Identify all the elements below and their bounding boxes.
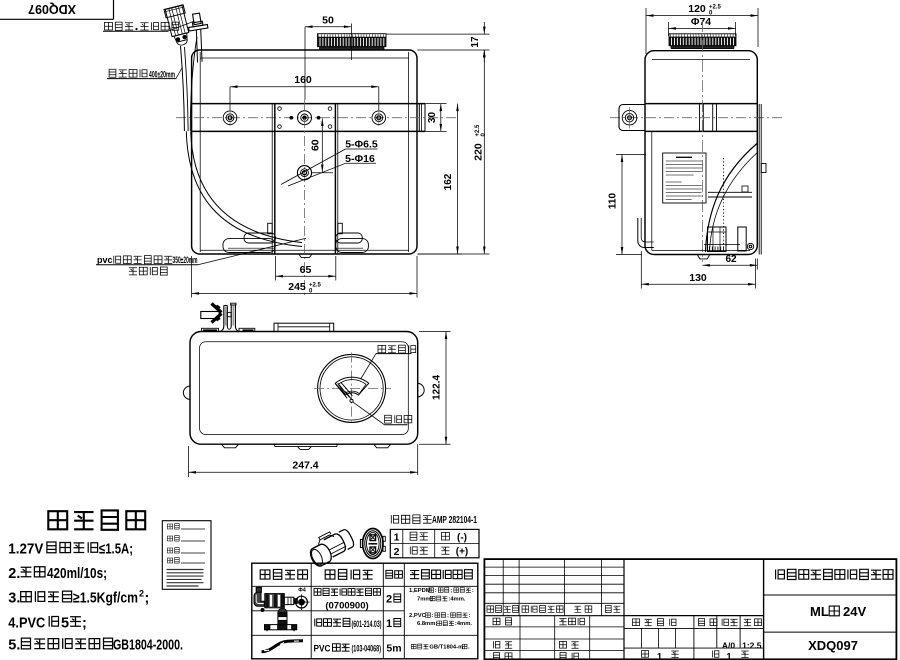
svg-text:122.4: 122.4: [432, 375, 443, 400]
svg-text:120: 120: [688, 3, 706, 15]
svg-text:1,EPDM: 1,EPDM: [409, 588, 431, 594]
svg-text::: :: [472, 588, 474, 594]
svg-text:PVC: PVC: [314, 643, 331, 654]
svg-text:6.8mm;: 6.8mm;: [417, 621, 437, 627]
svg-text:220: 220: [472, 143, 484, 161]
svg-text:420ml/10s;: 420ml/10s;: [47, 566, 107, 582]
svg-text:162: 162: [443, 173, 454, 190]
svg-text:(0700900): (0700900): [325, 601, 368, 612]
svg-text:1: 1: [726, 652, 732, 660]
svg-text:60: 60: [309, 139, 321, 151]
svg-text:50: 50: [322, 14, 334, 26]
svg-text:XDQ097: XDQ097: [808, 638, 858, 653]
svg-text::: :: [431, 613, 433, 619]
svg-text:GB/T1804-m: GB/T1804-m: [429, 645, 463, 651]
svg-text:1.27V: 1.27V: [8, 542, 43, 558]
svg-text:AMP 282104-1: AMP 282104-1: [432, 514, 477, 526]
svg-text:GB1804-2000.: GB1804-2000.: [113, 638, 183, 654]
svg-text:2,PVC: 2,PVC: [409, 613, 427, 619]
svg-text:A/0: A/0: [722, 641, 736, 651]
svg-text:1: 1: [394, 532, 400, 544]
svg-text::: :: [469, 613, 471, 619]
svg-text:2: 2: [139, 589, 144, 599]
svg-text:2.: 2.: [8, 566, 20, 582]
svg-text:65: 65: [300, 264, 312, 276]
svg-text:2: 2: [386, 593, 392, 605]
svg-text:247.4: 247.4: [292, 460, 318, 472]
svg-text:Φ74: Φ74: [691, 16, 711, 28]
svg-text:≤1.5A;: ≤1.5A;: [99, 542, 133, 558]
svg-text:(+): (+): [456, 547, 469, 558]
svg-text:;: ;: [145, 591, 150, 607]
svg-text:(601-214.03): (601-214.03): [352, 619, 382, 630]
svg-text:;: ;: [450, 588, 452, 594]
svg-text:1:2.5: 1:2.5: [742, 641, 762, 651]
svg-text:(103-04068): (103-04068): [352, 643, 382, 654]
svg-text:3.: 3.: [8, 591, 20, 607]
svg-text:5m: 5m: [386, 642, 401, 654]
svg-text::: :: [435, 588, 437, 594]
svg-text:17: 17: [470, 36, 481, 48]
svg-text:≥1.5Kgf/cm: ≥1.5Kgf/cm: [73, 591, 138, 607]
svg-text:5.: 5.: [8, 638, 20, 654]
svg-text:XDQ097: XDQ097: [28, 2, 76, 16]
svg-text:;: ;: [447, 613, 449, 619]
svg-text:Φ4: Φ4: [298, 588, 307, 594]
svg-text:110: 110: [608, 192, 619, 209]
svg-text:pvc: pvc: [97, 255, 113, 265]
svg-text:;: ;: [82, 615, 87, 631]
svg-text::4mm.: :4mm.: [448, 597, 465, 603]
svg-text:1: 1: [386, 618, 392, 630]
svg-text:2: 2: [394, 546, 400, 558]
svg-text:4.PVC: 4.PVC: [8, 615, 45, 631]
svg-text:ML: ML: [810, 604, 829, 619]
svg-text:245: 245: [288, 281, 306, 293]
svg-text::4mm.: :4mm.: [455, 621, 472, 627]
svg-text:62: 62: [725, 254, 737, 265]
svg-text:30: 30: [427, 112, 438, 124]
svg-text:130: 130: [689, 272, 707, 284]
svg-text:1: 1: [657, 652, 663, 660]
svg-text:24V: 24V: [843, 604, 866, 619]
svg-text:5: 5: [61, 615, 69, 631]
svg-text:160: 160: [294, 74, 312, 86]
svg-text:5-Φ6.5: 5-Φ6.5: [345, 138, 378, 150]
svg-text:(-): (-): [457, 532, 467, 543]
